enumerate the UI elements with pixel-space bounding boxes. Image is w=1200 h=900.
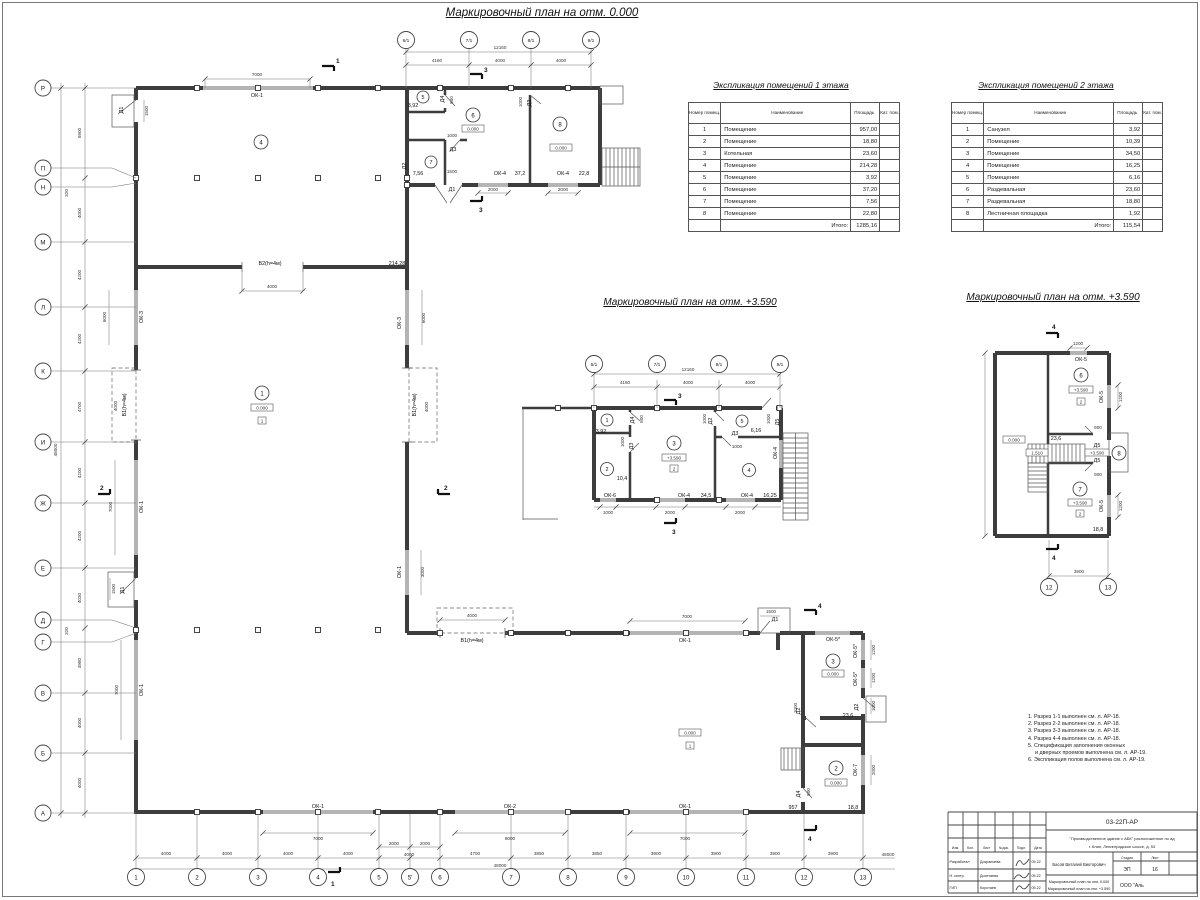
axis-label: К	[41, 369, 45, 376]
sheet-header: Лист	[1151, 856, 1159, 860]
door-label: Д2	[708, 418, 714, 425]
door-label: Д4	[630, 417, 636, 424]
axis-label: Р	[41, 86, 45, 93]
room-area: 10,4	[617, 476, 628, 482]
section-number: 3	[484, 67, 488, 74]
dim-label: 4000	[77, 717, 82, 728]
dim-label: 8000	[505, 836, 516, 841]
section-number: 3	[678, 393, 682, 400]
axis-label: 12	[801, 875, 808, 882]
dim-label: 1200	[1073, 341, 1084, 346]
room-area: 214,28	[389, 261, 406, 267]
dim-label: 3850	[592, 851, 603, 856]
dim-label: 4000	[77, 777, 82, 788]
stamp-date: 05.22	[1032, 874, 1041, 878]
section-number: 4	[1052, 324, 1056, 331]
dim-label: 7000	[680, 836, 691, 841]
stamp-col: №док.	[999, 846, 1009, 850]
section-number: 2	[100, 485, 104, 492]
level-mark: +3.590	[1073, 500, 1088, 505]
dim-label: 1500	[447, 169, 458, 174]
level-mark: +3.590	[1090, 450, 1105, 455]
dim-label: 4160	[620, 380, 631, 385]
level-mark: +3.590	[667, 455, 682, 460]
room-area: 22,8	[579, 171, 590, 177]
level-mark: 0.000	[467, 126, 479, 131]
section-marks: 1 1 2 2 3 3 4 4	[98, 58, 822, 888]
dim-label: 800	[449, 96, 454, 104]
floor-type-mark: 2	[673, 466, 676, 471]
axis-label: В	[41, 691, 45, 698]
room-area: 34,5	[701, 493, 712, 499]
axis-label: Б	[41, 751, 45, 758]
window-label: ОК-4	[773, 447, 779, 459]
dim-label: 1000	[603, 510, 614, 515]
door-label: Д1	[772, 617, 779, 623]
dim-label: 4000	[424, 401, 429, 412]
door-label: Д5	[1094, 443, 1101, 449]
stamp-role: Разработал	[950, 860, 970, 864]
dim-label: 2000	[389, 841, 400, 846]
room-area: 23,6	[1051, 436, 1062, 442]
axis-label: 5	[377, 875, 381, 882]
dim-label: 48000	[494, 863, 507, 868]
room-area: 957	[789, 805, 798, 811]
dim-label: 7000	[682, 614, 693, 619]
axis-chain-top: 6/1 7/1 8/1 9/1 12160 4160 4000 4000 700…	[202, 32, 599, 89]
stamp-col: Дата	[1034, 846, 1042, 850]
dim-label: 4700	[77, 401, 82, 412]
room-area: 6,16	[751, 428, 762, 434]
room-number: 7	[430, 160, 433, 166]
room-number: 5	[741, 419, 744, 425]
axis-label: 8/1	[528, 38, 535, 44]
window-label: ОК-5	[1099, 500, 1105, 512]
door-label: Д2	[402, 163, 408, 170]
room-number: 5	[422, 95, 425, 101]
floor-type-mark: 2	[1080, 399, 1083, 404]
axis-label: 8/1	[716, 362, 723, 368]
sheet-title-2: Маркировочный план на отм. +3.590	[1048, 887, 1111, 891]
room-area: 3,92	[596, 429, 607, 435]
dim-label: 1000	[620, 436, 625, 447]
dim-label: 2000	[735, 510, 746, 515]
window-label: ОК-3	[397, 317, 403, 329]
axis-label: 4	[316, 875, 320, 882]
dim-label: 1000	[518, 96, 523, 107]
dim-label: 7000	[252, 72, 263, 77]
level-mark: 0.000	[830, 780, 842, 785]
axis-label: 9/1	[777, 362, 784, 368]
dim-label: 4000	[267, 284, 278, 289]
dim-label: 1200	[871, 644, 876, 655]
section-number: 4	[818, 603, 822, 610]
right-plan: 1200 1200 1200 900 900 3900 12 13 ОК-5 О…	[982, 324, 1128, 596]
dim-label: 1500	[766, 609, 777, 614]
main-plan-labels: ОК-1 В2(h=4м) 214,28 ОК-3 В1(h=4м) ОК-1 …	[119, 91, 860, 811]
dim-label: 3900	[1074, 569, 1085, 574]
stage-value: ЭП	[1123, 867, 1131, 873]
dim-label: 320	[64, 627, 69, 635]
room-number: 4	[748, 468, 751, 474]
floor-type-mark: 2	[1079, 511, 1082, 516]
stamp-date: 05.22	[1032, 860, 1041, 864]
axis-label: 7	[509, 875, 513, 882]
dim-label: 4160	[432, 58, 443, 63]
axis-label: 11	[743, 875, 750, 882]
stamp-col: Кол.	[967, 846, 974, 850]
dim-label: 4000	[495, 58, 506, 63]
dim-label: 3900	[711, 851, 722, 856]
dim-label: 3900	[828, 851, 839, 856]
axis-label: 13	[860, 875, 867, 882]
door-label: Д1	[119, 107, 125, 114]
level-mark: 0.000	[555, 145, 567, 150]
dim-label: 1000	[447, 133, 458, 138]
dim-label: 1000	[702, 413, 707, 424]
stamp-role: ГИП	[950, 886, 958, 890]
dim-label: 4000	[745, 380, 756, 385]
room-area: 18,8	[848, 805, 859, 811]
axis-label: М	[40, 240, 45, 247]
stamp-role: Н. контр.	[950, 874, 965, 878]
axis-label: 6/1	[403, 38, 410, 44]
dim-label: 4030	[77, 592, 82, 603]
dim-label: 2000	[420, 841, 431, 846]
dim-label: 6000	[421, 312, 426, 323]
dim-label: 2000	[488, 187, 499, 192]
axis-label: 2	[195, 875, 199, 882]
level-mark: 0.000	[1008, 437, 1020, 442]
dim-label: 3000	[420, 566, 425, 577]
section-number: 1	[331, 881, 335, 888]
axis-label: 1	[134, 875, 138, 882]
window-label: ОК-1	[679, 638, 691, 644]
window-label: ОК-1	[679, 804, 691, 810]
mid-plan: 6/1 7/1 8/1 9/1 12160 4160 4000 4000 100…	[522, 356, 808, 537]
dim-label: 4200	[77, 467, 82, 478]
axis-label: 6	[438, 875, 442, 882]
dim-label: 3850	[534, 851, 545, 856]
window-label: ОК-1	[397, 566, 403, 578]
level-mark: 0.000	[256, 405, 268, 410]
dim-label: 3900	[651, 851, 662, 856]
dim-label: 48000	[53, 443, 58, 456]
axis-label: 8	[566, 875, 570, 882]
dim-label: 900	[1094, 472, 1102, 477]
dim-label: 320	[64, 189, 69, 197]
window-label: ОК-1	[312, 804, 324, 810]
window-label: ОК-6	[604, 493, 616, 499]
dim-label: 1200	[871, 672, 876, 683]
stamp-name: Досетаева	[980, 874, 999, 878]
door-label: Д5	[1094, 458, 1101, 464]
level-mark: 0.000	[684, 730, 696, 735]
sheet-title-1: Маркировочный план на отм. 0.000	[1049, 880, 1109, 884]
door-label: Д2	[796, 708, 802, 715]
dim-label: 2000	[665, 510, 676, 515]
window-label: ОК-5	[1099, 391, 1105, 403]
axis-label: Н	[41, 185, 45, 192]
stamp-name: Докраниева	[980, 860, 1001, 864]
floor-type-mark: 1	[261, 418, 264, 423]
dim-label: 2000	[558, 187, 569, 192]
dim-label: 1500	[144, 105, 149, 116]
axis-label: Ж	[40, 501, 46, 508]
dim-label: 1500	[111, 583, 116, 594]
title-block: 03-22П-АР "Производственное здание с АБК…	[948, 812, 1197, 893]
door-label: Д3	[629, 443, 635, 450]
axis-label: 9	[624, 875, 628, 882]
room-area: 16,25	[763, 493, 777, 499]
dim-label: 6000	[102, 311, 107, 322]
window-label: ОК-1	[251, 93, 263, 99]
window-label: ОК-3	[139, 311, 145, 323]
window-label: ОК-1	[139, 684, 145, 696]
door-label: Д3	[527, 100, 533, 107]
main-plan-walls	[136, 88, 865, 814]
dim-label: 4700	[470, 851, 481, 856]
dim-label: 4000	[404, 852, 415, 857]
dim-label: 12160	[494, 45, 507, 50]
gate-label: В1(h=4м)	[122, 393, 128, 416]
axis-label: 7/1	[466, 38, 473, 44]
window-label: ОК-4	[494, 171, 506, 177]
dim-label: 48000	[882, 852, 895, 857]
gate-label: В1(h=4м)	[460, 638, 483, 644]
main-plan-dims: 4000 2000 2000 7000 8000 7000 6000 4000 …	[102, 96, 876, 841]
door-label: Д1	[120, 587, 126, 594]
section-number: 4	[1052, 555, 1056, 562]
door-label: Д2	[854, 704, 860, 711]
level-mark: 1,510	[1031, 450, 1043, 455]
dim-label: 3900	[770, 851, 781, 856]
dim-label: 1200	[1118, 500, 1123, 511]
dim-label: 4200	[77, 530, 82, 541]
section-number: 2	[444, 485, 448, 492]
window-label: ОК-5*	[853, 643, 859, 658]
door-label: Д1	[449, 187, 456, 193]
room-area: 7,56	[413, 171, 424, 177]
window-label: ОК-2	[504, 804, 516, 810]
dim-label: 1200	[1118, 391, 1123, 402]
axis-label: 7/1	[654, 362, 661, 368]
room-number: 2	[606, 467, 609, 473]
gate-label: В1(h=4м)	[412, 393, 418, 416]
dim-label: 4000	[222, 851, 233, 856]
project-name: "Производственное здание с АБК" располож…	[1069, 836, 1175, 841]
door-label: Д3	[732, 431, 739, 437]
room-area: 18,8	[1093, 527, 1104, 533]
dim-label: 1000	[766, 413, 771, 424]
room-number: 1	[606, 418, 609, 424]
window-label: ОК-1	[139, 501, 145, 513]
project-address: г. Клин, Ленинградское шоссе, д. 53	[1089, 844, 1156, 849]
door-label: Д3	[450, 147, 457, 153]
window-label: ОК-4	[557, 171, 569, 177]
dim-label: 1000	[871, 700, 876, 711]
axis-label: П	[41, 166, 45, 173]
door-label: Д4	[440, 96, 446, 103]
dim-label: 4200	[77, 269, 82, 280]
window-label: ОК-4	[741, 493, 753, 499]
dim-label: 4000	[161, 851, 172, 856]
axis-label: 6/1	[591, 362, 598, 368]
dim-label: 2000	[871, 764, 876, 775]
dim-label: 800	[639, 415, 644, 423]
dim-label: 4000	[343, 851, 354, 856]
drawing-sheet: { "titles": { "plan0": "Маркировочный пл…	[0, 0, 1200, 900]
axis-label: 9/1	[588, 38, 595, 44]
section-number: 3	[479, 207, 483, 214]
dim-label: 1000	[732, 444, 743, 449]
stamp-col: Подл.	[1017, 846, 1026, 850]
axis-label: 3	[256, 875, 260, 882]
door-label: Д5	[775, 419, 781, 426]
window-label: ОК-4	[678, 493, 690, 499]
dim-label: 4000	[113, 400, 118, 411]
level-mark: +3.590	[1074, 387, 1089, 392]
company-name: ООО "Аль	[1120, 883, 1144, 889]
door-leaves	[118, 95, 875, 798]
dim-label: 4000	[556, 58, 567, 63]
dim-label: 3980	[77, 657, 82, 668]
axis-label: 13	[1105, 585, 1112, 592]
axis-label: 10	[683, 875, 690, 882]
window-label: ОК-5*	[826, 637, 841, 643]
plan-canvas: Р П Н М Л К И Ж Е Д Г В Б А 5900 320 400…	[0, 0, 1200, 900]
dim-label: 4000	[283, 851, 294, 856]
columns	[134, 86, 749, 815]
axis-label: Л	[41, 305, 45, 312]
dim-label: 7000	[114, 684, 119, 695]
stage-header: Стадия	[1121, 856, 1133, 860]
axis-label: И	[41, 440, 45, 447]
stamp-date: 05.22	[1032, 886, 1041, 890]
stamp-name: Коротаев	[980, 886, 996, 890]
gate-label: В2(h=4м)	[258, 261, 281, 267]
room-area: 3,92	[408, 103, 419, 109]
porches-and-gates	[108, 86, 886, 722]
sheet-value: 16	[1152, 867, 1158, 873]
dim-label: 4000	[77, 207, 82, 218]
dim-label: 7000	[108, 501, 113, 512]
chief-engineer-name: Басов Виталий Викторович	[1052, 862, 1105, 867]
level-mark: 0.000	[827, 671, 839, 676]
room-area: 37,2	[515, 171, 526, 177]
door-label: Д4	[796, 791, 802, 798]
axis-label: Е	[41, 566, 45, 573]
dim-label: 12160	[682, 367, 695, 372]
window-label: ОК-5	[1075, 357, 1087, 363]
room-area: 23,6	[843, 713, 854, 719]
stamp-col: Лист	[983, 846, 991, 850]
dim-label: 7000	[313, 836, 324, 841]
section-number: 3	[672, 529, 676, 536]
dim-label: 4000	[683, 380, 694, 385]
section-number: 1	[336, 58, 340, 65]
axis-label: 5'	[408, 875, 413, 882]
dim-label: 4000	[467, 613, 478, 618]
window-label: ОК-7	[853, 764, 859, 776]
dim-label: 5900	[77, 127, 82, 138]
doc-code: 03-22П-АР	[1106, 819, 1138, 826]
section-number: 4	[808, 836, 812, 843]
dim-label: 900	[1094, 425, 1102, 430]
signature-squiggle	[1014, 859, 1029, 890]
stamp-col: Изм.	[952, 846, 959, 850]
dim-label: 4200	[77, 333, 82, 344]
dim-label: 800	[806, 788, 811, 796]
floor-type-mark: 1	[689, 743, 692, 748]
axis-label: 12	[1046, 585, 1053, 592]
axis-chain-bottom: 4000 4000 4000 4000 2000 2000 4000 4700 …	[128, 814, 896, 886]
window-label: ОК-5*	[853, 671, 859, 686]
